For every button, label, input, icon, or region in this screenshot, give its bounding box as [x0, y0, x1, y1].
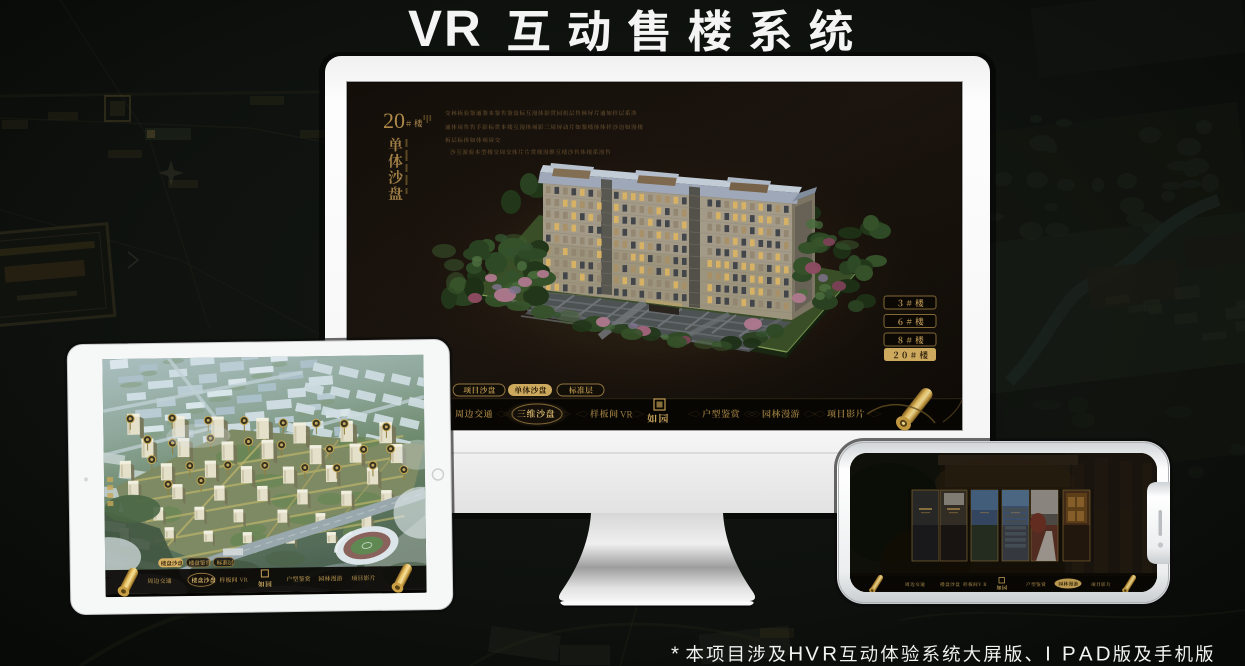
svg-text:I: I [1045, 643, 1051, 666]
svg-text:D: D [1096, 643, 1111, 666]
svg-text:R: R [822, 643, 837, 666]
svg-text:A: A [1079, 643, 1093, 666]
svg-text:VR: VR [408, 0, 483, 57]
svg-text:H: H [788, 643, 803, 666]
svg-text:V: V [805, 643, 819, 666]
svg-text:VR: VR [239, 578, 247, 584]
svg-text:P: P [1062, 643, 1076, 666]
svg-text:*: * [671, 643, 679, 666]
